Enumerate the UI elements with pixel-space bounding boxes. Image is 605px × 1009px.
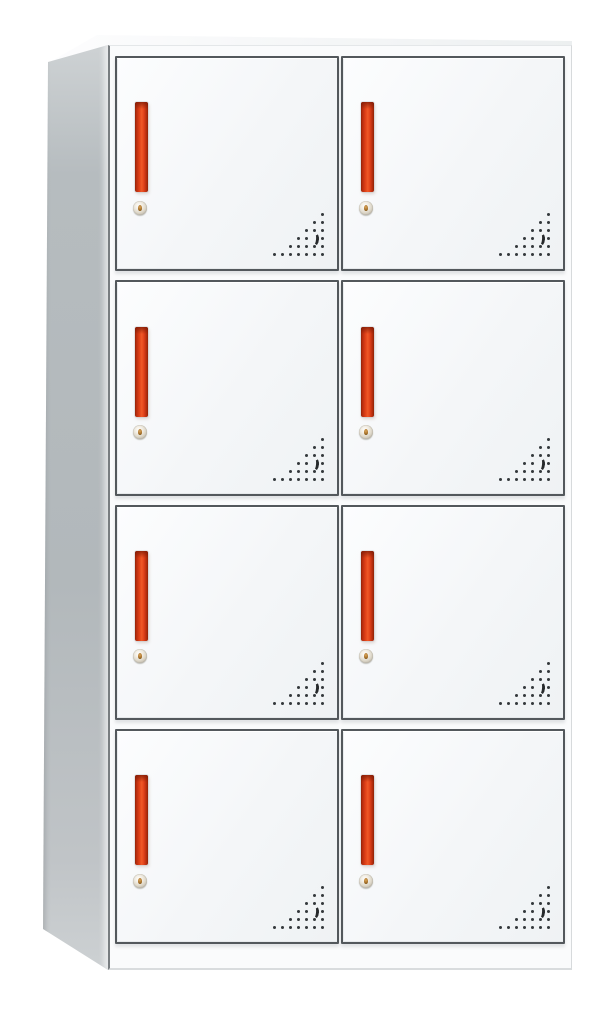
vent-hole bbox=[547, 237, 550, 240]
door-handle[interactable] bbox=[361, 102, 374, 192]
vent-hole bbox=[547, 662, 550, 665]
vent-hole bbox=[305, 686, 308, 689]
door-handle[interactable] bbox=[361, 775, 374, 865]
vent-hole bbox=[515, 694, 518, 697]
vent-hole bbox=[531, 253, 534, 256]
vent-hole bbox=[297, 702, 300, 705]
vent-hole bbox=[297, 462, 300, 465]
vent-hole bbox=[273, 926, 276, 929]
vent-hole bbox=[321, 221, 324, 224]
door-handle[interactable] bbox=[361, 551, 374, 641]
vent-hole bbox=[499, 253, 502, 256]
vent-hole bbox=[539, 678, 542, 681]
vent-hole bbox=[531, 229, 534, 232]
vent-hole bbox=[531, 462, 534, 465]
vent-hole bbox=[305, 229, 308, 232]
locker-door-r3-c2[interactable] bbox=[341, 505, 565, 720]
vent-hole bbox=[313, 229, 316, 232]
vent-hole bbox=[305, 902, 308, 905]
keyhole-lock[interactable] bbox=[133, 649, 147, 663]
vent-hole bbox=[547, 918, 550, 921]
vent-hole bbox=[531, 454, 534, 457]
vent-hole bbox=[313, 253, 316, 256]
vent-hole bbox=[531, 702, 534, 705]
vent-hole bbox=[547, 462, 550, 465]
vent-crescent-hole bbox=[310, 457, 319, 471]
vent-hole bbox=[305, 918, 308, 921]
door-grid bbox=[115, 56, 565, 944]
vent-hole bbox=[305, 454, 308, 457]
vent-hole bbox=[523, 462, 526, 465]
vent-hole bbox=[523, 478, 526, 481]
keyhole-lock[interactable] bbox=[133, 425, 147, 439]
vent-hole bbox=[289, 253, 292, 256]
vent-hole bbox=[321, 462, 324, 465]
vent-hole bbox=[523, 702, 526, 705]
vent-hole bbox=[321, 245, 324, 248]
vent-hole bbox=[321, 213, 324, 216]
door-handle[interactable] bbox=[135, 775, 148, 865]
vent-hole bbox=[289, 478, 292, 481]
door-handle[interactable] bbox=[135, 327, 148, 417]
vent-crescent-hole bbox=[310, 681, 319, 695]
locker-door-r3-c1[interactable] bbox=[115, 505, 339, 720]
door-handle[interactable] bbox=[135, 551, 148, 641]
vent-hole bbox=[321, 237, 324, 240]
vent-hole bbox=[289, 702, 292, 705]
vent-hole bbox=[305, 253, 308, 256]
keyhole-lock[interactable] bbox=[359, 425, 373, 439]
vent-hole bbox=[281, 702, 284, 705]
vent-hole bbox=[539, 702, 542, 705]
vent-hole bbox=[321, 438, 324, 441]
vent-hole bbox=[547, 894, 550, 897]
vent-crescent-hole bbox=[536, 681, 545, 695]
vent-hole bbox=[547, 229, 550, 232]
vent-hole bbox=[531, 678, 534, 681]
keyhole-lock[interactable] bbox=[133, 201, 147, 215]
vent-hole bbox=[281, 926, 284, 929]
vent-hole bbox=[539, 670, 542, 673]
vent-hole bbox=[313, 926, 316, 929]
vent-hole bbox=[321, 470, 324, 473]
product-photo-scene bbox=[0, 0, 605, 1009]
vent-hole bbox=[273, 253, 276, 256]
locker-door-r1-c1[interactable] bbox=[115, 56, 339, 271]
vent-hole bbox=[305, 237, 308, 240]
vent-hole bbox=[499, 478, 502, 481]
vent-hole bbox=[289, 470, 292, 473]
ventilation-holes bbox=[499, 886, 550, 929]
ventilation-holes bbox=[499, 662, 550, 705]
vent-hole bbox=[297, 245, 300, 248]
vent-hole bbox=[547, 926, 550, 929]
vent-hole bbox=[313, 221, 316, 224]
vent-hole bbox=[515, 478, 518, 481]
vent-hole bbox=[531, 470, 534, 473]
vent-hole bbox=[313, 670, 316, 673]
vent-hole bbox=[321, 918, 324, 921]
vent-hole bbox=[297, 237, 300, 240]
vent-hole bbox=[523, 686, 526, 689]
ventilation-holes bbox=[273, 886, 324, 929]
vent-hole bbox=[313, 894, 316, 897]
keyhole-lock[interactable] bbox=[359, 649, 373, 663]
vent-hole bbox=[499, 702, 502, 705]
vent-hole bbox=[539, 902, 542, 905]
locker-door-r2-c2[interactable] bbox=[341, 280, 565, 495]
vent-hole bbox=[531, 237, 534, 240]
vent-hole bbox=[321, 902, 324, 905]
ventilation-holes bbox=[273, 438, 324, 481]
vent-hole bbox=[305, 462, 308, 465]
vent-hole bbox=[321, 253, 324, 256]
vent-hole bbox=[321, 229, 324, 232]
vent-hole bbox=[281, 478, 284, 481]
cabinet-front-panel bbox=[108, 45, 572, 970]
vent-hole bbox=[297, 694, 300, 697]
vent-hole bbox=[547, 478, 550, 481]
vent-hole bbox=[547, 470, 550, 473]
vent-hole bbox=[531, 686, 534, 689]
keyhole-lock[interactable] bbox=[359, 201, 373, 215]
vent-hole bbox=[273, 702, 276, 705]
cabinet-base bbox=[110, 945, 571, 968]
vent-hole bbox=[547, 910, 550, 913]
vent-hole bbox=[297, 478, 300, 481]
vent-hole bbox=[305, 678, 308, 681]
ventilation-holes bbox=[499, 438, 550, 481]
ventilation-holes bbox=[273, 213, 324, 256]
vent-hole bbox=[515, 470, 518, 473]
vent-hole bbox=[531, 245, 534, 248]
vent-hole bbox=[321, 894, 324, 897]
vent-hole bbox=[547, 686, 550, 689]
vent-hole bbox=[289, 918, 292, 921]
vent-hole bbox=[321, 702, 324, 705]
vent-hole bbox=[523, 918, 526, 921]
vent-hole bbox=[281, 253, 284, 256]
vent-hole bbox=[547, 454, 550, 457]
vent-hole bbox=[539, 894, 542, 897]
vent-hole bbox=[273, 478, 276, 481]
vent-hole bbox=[305, 694, 308, 697]
vent-hole bbox=[515, 253, 518, 256]
vent-hole bbox=[313, 478, 316, 481]
vent-crescent-hole bbox=[310, 906, 319, 920]
vent-hole bbox=[523, 245, 526, 248]
vent-hole bbox=[539, 446, 542, 449]
vent-hole bbox=[539, 253, 542, 256]
vent-hole bbox=[305, 910, 308, 913]
vent-hole bbox=[523, 237, 526, 240]
cabinet-side-panel bbox=[43, 45, 108, 970]
vent-hole bbox=[289, 926, 292, 929]
vent-hole bbox=[297, 918, 300, 921]
vent-hole bbox=[297, 253, 300, 256]
vent-hole bbox=[539, 221, 542, 224]
vent-hole bbox=[531, 910, 534, 913]
ventilation-holes bbox=[273, 662, 324, 705]
vent-hole bbox=[297, 926, 300, 929]
vent-hole bbox=[305, 245, 308, 248]
vent-hole bbox=[547, 670, 550, 673]
vent-hole bbox=[515, 918, 518, 921]
vent-hole bbox=[515, 245, 518, 248]
vent-hole bbox=[547, 253, 550, 256]
vent-hole bbox=[321, 662, 324, 665]
vent-hole bbox=[507, 926, 510, 929]
vent-hole bbox=[321, 694, 324, 697]
keyhole-lock[interactable] bbox=[133, 874, 147, 888]
vent-hole bbox=[515, 702, 518, 705]
vent-hole bbox=[313, 678, 316, 681]
vent-hole bbox=[547, 221, 550, 224]
vent-hole bbox=[539, 454, 542, 457]
locker-door-r4-c1[interactable] bbox=[115, 729, 339, 944]
vent-hole bbox=[321, 670, 324, 673]
vent-hole bbox=[321, 886, 324, 889]
vent-hole bbox=[547, 886, 550, 889]
vent-hole bbox=[305, 926, 308, 929]
vent-hole bbox=[531, 694, 534, 697]
locker-door-r2-c1[interactable] bbox=[115, 280, 339, 495]
vent-hole bbox=[321, 678, 324, 681]
vent-hole bbox=[297, 686, 300, 689]
keyhole-lock[interactable] bbox=[359, 874, 373, 888]
locker-door-r4-c2[interactable] bbox=[341, 729, 565, 944]
vent-hole bbox=[523, 910, 526, 913]
vent-hole bbox=[321, 446, 324, 449]
vent-hole bbox=[547, 702, 550, 705]
vent-hole bbox=[523, 470, 526, 473]
vent-hole bbox=[305, 478, 308, 481]
vent-hole bbox=[321, 478, 324, 481]
vent-hole bbox=[547, 438, 550, 441]
vent-hole bbox=[547, 446, 550, 449]
vent-hole bbox=[321, 910, 324, 913]
vent-hole bbox=[539, 478, 542, 481]
vent-hole bbox=[499, 926, 502, 929]
vent-hole bbox=[531, 926, 534, 929]
vent-hole bbox=[313, 702, 316, 705]
vent-hole bbox=[297, 910, 300, 913]
vent-hole bbox=[523, 253, 526, 256]
vent-hole bbox=[313, 446, 316, 449]
vent-hole bbox=[507, 702, 510, 705]
vent-hole bbox=[289, 694, 292, 697]
vent-hole bbox=[321, 454, 324, 457]
vent-hole bbox=[313, 902, 316, 905]
vent-hole bbox=[531, 918, 534, 921]
vent-crescent-hole bbox=[310, 233, 319, 247]
vent-crescent-hole bbox=[536, 906, 545, 920]
vent-hole bbox=[305, 702, 308, 705]
vent-hole bbox=[523, 694, 526, 697]
vent-hole bbox=[547, 694, 550, 697]
vent-hole bbox=[547, 245, 550, 248]
vent-hole bbox=[305, 470, 308, 473]
vent-hole bbox=[321, 926, 324, 929]
vent-hole bbox=[531, 902, 534, 905]
vent-crescent-hole bbox=[536, 457, 545, 471]
vent-hole bbox=[507, 253, 510, 256]
vent-hole bbox=[289, 245, 292, 248]
door-handle[interactable] bbox=[135, 102, 148, 192]
vent-hole bbox=[313, 454, 316, 457]
vent-hole bbox=[297, 470, 300, 473]
vent-hole bbox=[547, 213, 550, 216]
vent-hole bbox=[507, 478, 510, 481]
vent-hole bbox=[515, 926, 518, 929]
door-handle[interactable] bbox=[361, 327, 374, 417]
vent-hole bbox=[539, 229, 542, 232]
vent-crescent-hole bbox=[536, 233, 545, 247]
vent-hole bbox=[321, 686, 324, 689]
vent-hole bbox=[539, 926, 542, 929]
vent-hole bbox=[547, 902, 550, 905]
vent-hole bbox=[531, 478, 534, 481]
locker-door-r1-c2[interactable] bbox=[341, 56, 565, 271]
locker-cabinet bbox=[0, 0, 605, 1009]
ventilation-holes bbox=[499, 213, 550, 256]
vent-hole bbox=[523, 926, 526, 929]
vent-hole bbox=[547, 678, 550, 681]
